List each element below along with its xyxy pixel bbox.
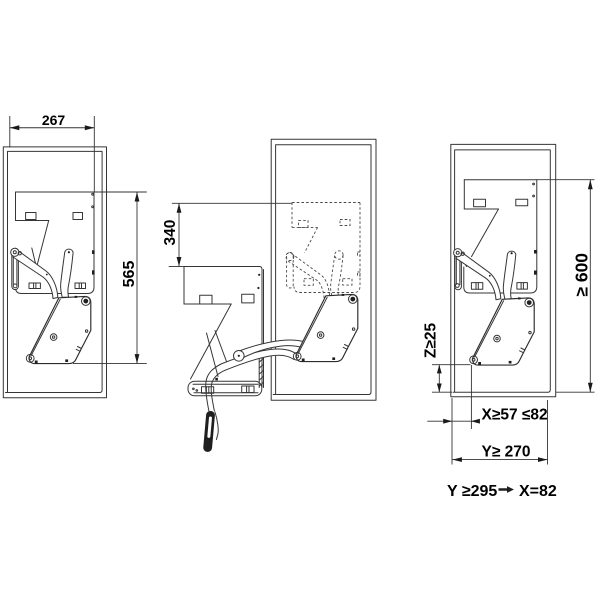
svg-text:X≥57 ≤82: X≥57 ≤82 xyxy=(482,407,548,424)
svg-text:Y ≥295: Y ≥295 xyxy=(447,483,497,500)
svg-text:267: 267 xyxy=(42,112,66,128)
svg-text:≥ 600: ≥ 600 xyxy=(572,253,592,297)
svg-text:Y≥ 270: Y≥ 270 xyxy=(482,444,531,461)
svg-text:565: 565 xyxy=(121,261,138,288)
svg-text:X=82: X=82 xyxy=(519,483,557,500)
svg-text:340: 340 xyxy=(162,220,179,246)
svg-text:Z≥25: Z≥25 xyxy=(423,323,440,359)
